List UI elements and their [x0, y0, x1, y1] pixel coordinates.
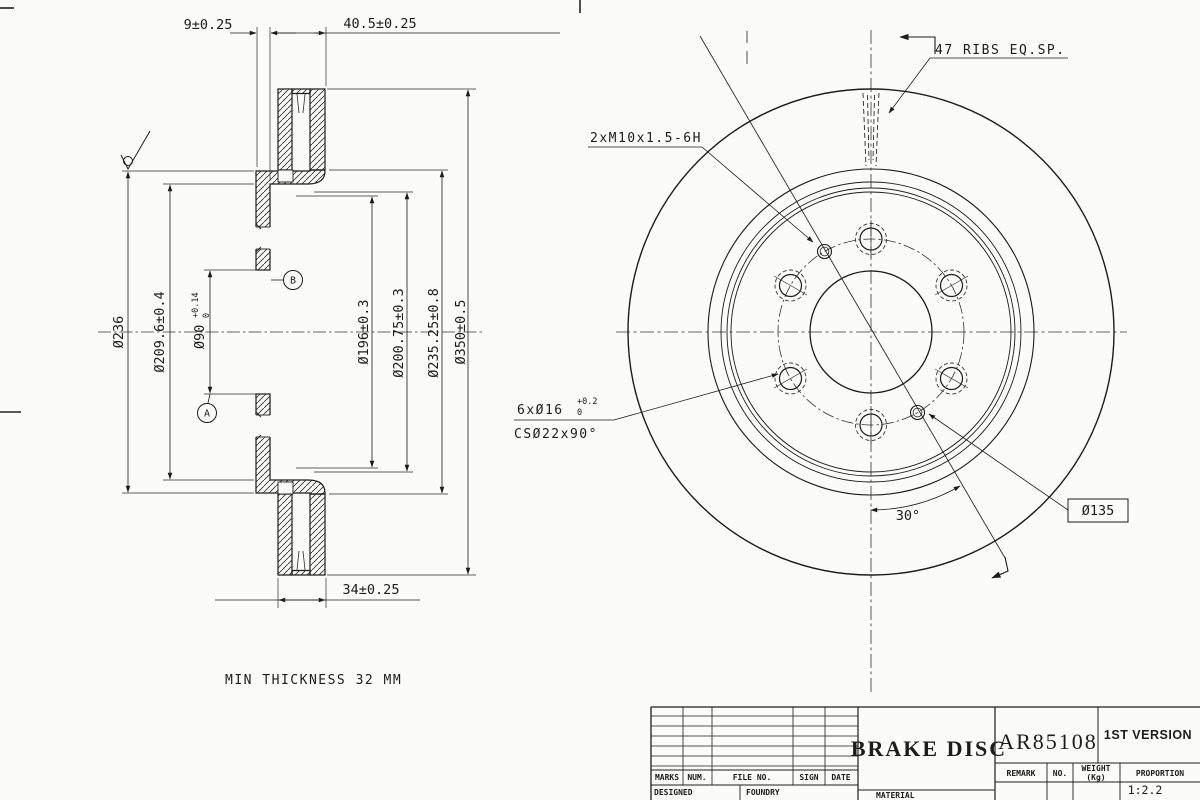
leaders [514, 58, 1068, 510]
col-file-no: FILE NO. [733, 773, 772, 782]
dim-dia209-6: Ø209.6±0.4 [152, 291, 168, 372]
foundry-label: FOUNDRY [746, 788, 780, 797]
datum-b-label: B [290, 276, 296, 287]
svg-text:0: 0 [202, 313, 212, 318]
front-centerlines [616, 30, 1127, 693]
material-label: MATERIAL [876, 791, 915, 800]
holes-tol-upper: +0.2 [577, 397, 597, 407]
drawing-sheet: A B 9±0.25 40.5±0.25 Ø236 Ø209.6±0.4 Ø90… [0, 0, 1200, 800]
title-block: BRAKE DISC AR85108 1ST VERSION MARKS NUM… [651, 707, 1200, 800]
dim-dia235-25: Ø235.25±0.8 [426, 288, 442, 377]
datum-b: B [284, 271, 303, 290]
col-sign: SIGN [799, 773, 818, 782]
brake-disc-drawing: A B 9±0.25 40.5±0.25 Ø236 Ø209.6±0.4 Ø90… [0, 0, 1200, 800]
section-arrow-top [900, 37, 935, 54]
countersink-note: CSØ22x90° [514, 427, 598, 442]
dim-dia350: Ø350±0.5 [453, 299, 469, 364]
proportion-label: PROPORTION [1136, 769, 1184, 778]
no-label: NO. [1053, 769, 1067, 778]
angle-dimension [871, 486, 960, 510]
bolt-circle-label: Ø135 [1082, 503, 1115, 519]
dim-dia200-75: Ø200.75±0.3 [391, 288, 407, 377]
sheet-marks [0, 0, 747, 412]
dim-dia236: Ø236 [111, 316, 127, 349]
dim-40-5: 40.5±0.25 [343, 16, 416, 32]
dim-34: 34±0.25 [343, 582, 400, 598]
section-extension-lines [122, 27, 476, 608]
ribs-note: 47 RIBS EQ.SP. [935, 43, 1066, 58]
thread-note: 2xM10x1.5-6H [590, 131, 702, 146]
section-arrow-bottom [992, 557, 1008, 578]
datum-a-label: A [204, 409, 210, 420]
drawing-number: AR85108 [998, 729, 1098, 754]
holes-tol-lower: 0 [577, 408, 582, 418]
dim-dia196: Ø196±0.3 [356, 299, 372, 364]
remark-label: REMARK [1007, 769, 1036, 778]
svg-text:Ø90: Ø90 [192, 325, 208, 349]
min-thickness-note: MIN THICKNESS 32 MM [225, 673, 402, 688]
drawing-title: BRAKE DISC [851, 736, 1007, 761]
surface-finish-icon [121, 131, 150, 169]
weight-unit: (Kg) [1086, 773, 1105, 782]
proportion-value: 1:2.2 [1128, 783, 1163, 797]
bolt-circle-dimension: Ø135 [1068, 499, 1128, 522]
dim-9: 9±0.25 [184, 17, 233, 33]
datum-a: A [198, 404, 217, 423]
version-label: 1ST VERSION [1104, 728, 1192, 742]
cutting-plane-line [700, 36, 1005, 558]
svg-text:+0.14: +0.14 [191, 292, 201, 318]
col-date: DATE [831, 773, 850, 782]
weight-label: WEIGHT [1082, 764, 1111, 773]
holes-note: 6xØ16 [517, 403, 564, 418]
col-num: NUM. [687, 773, 706, 782]
section-view: A B 9±0.25 40.5±0.25 Ø236 Ø209.6±0.4 Ø90… [98, 16, 560, 688]
angle-label: 30° [896, 508, 920, 524]
front-view: Ø135 47 RIBS EQ.SP. 2xM10x1.5-6H 6xØ16 +… [514, 30, 1128, 693]
col-marks: MARKS [655, 773, 679, 782]
designed-label: DESIGNED [654, 788, 693, 797]
dim-dia90: Ø90 +0.14 0 [191, 292, 212, 349]
